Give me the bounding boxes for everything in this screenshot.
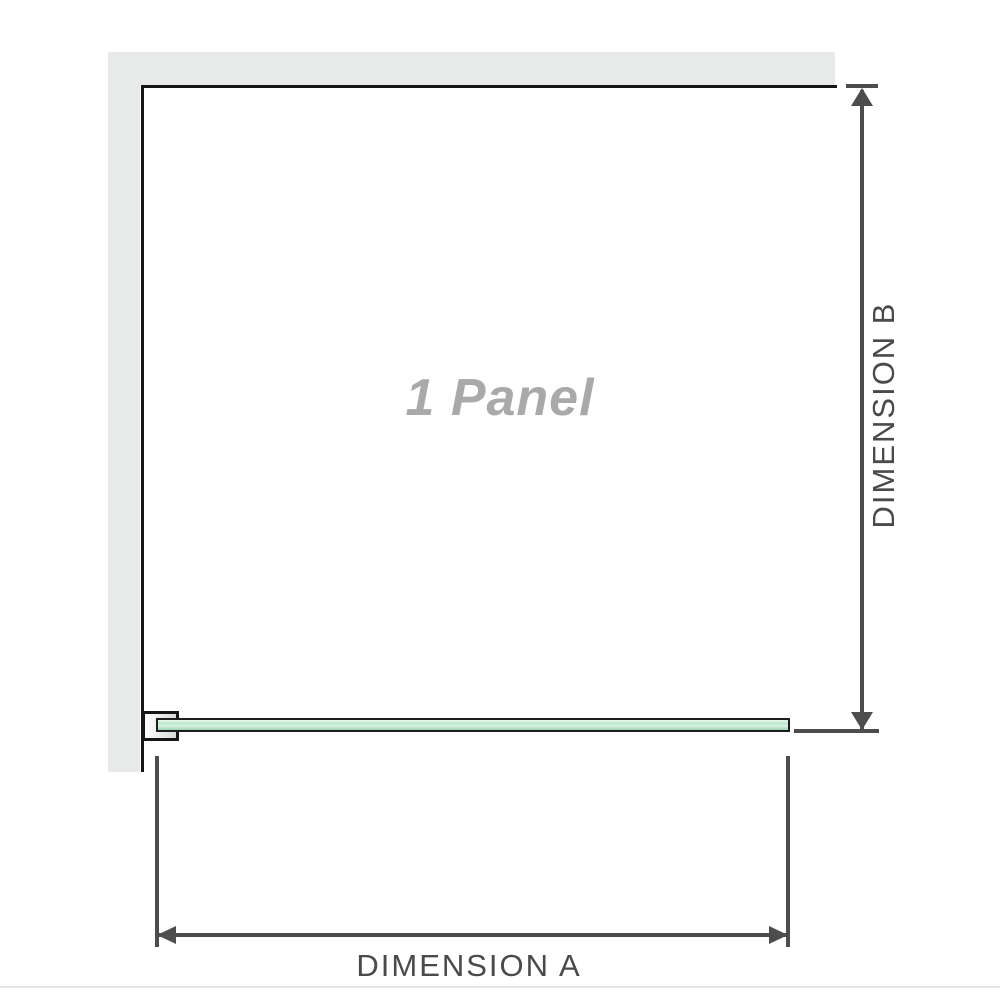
- arrow-up-icon: [851, 88, 873, 106]
- glass-panel: [156, 718, 790, 732]
- dimension-a-label: DIMENSION A: [356, 948, 581, 984]
- enclosure-top-edge: [141, 85, 837, 88]
- dimension-a-extension-left: [155, 756, 159, 947]
- enclosure-left-edge: [141, 85, 144, 772]
- arrow-right-icon: [769, 926, 788, 944]
- wall-top: [108, 52, 835, 85]
- arrow-down-icon: [851, 712, 873, 730]
- dimension-b-label: DIMENSION B: [866, 302, 902, 529]
- arrow-left-icon: [157, 926, 176, 944]
- page-bottom-divider: [0, 986, 1000, 988]
- dimension-a-line: [157, 933, 788, 937]
- shower-panel-diagram: 1 Panel DIMENSION B DIMENSION A: [0, 0, 1000, 1000]
- dimension-a-extension-right: [786, 756, 790, 947]
- dimension-b-line: [860, 90, 864, 732]
- panel-label: 1 Panel: [405, 368, 594, 428]
- wall-left: [108, 52, 140, 772]
